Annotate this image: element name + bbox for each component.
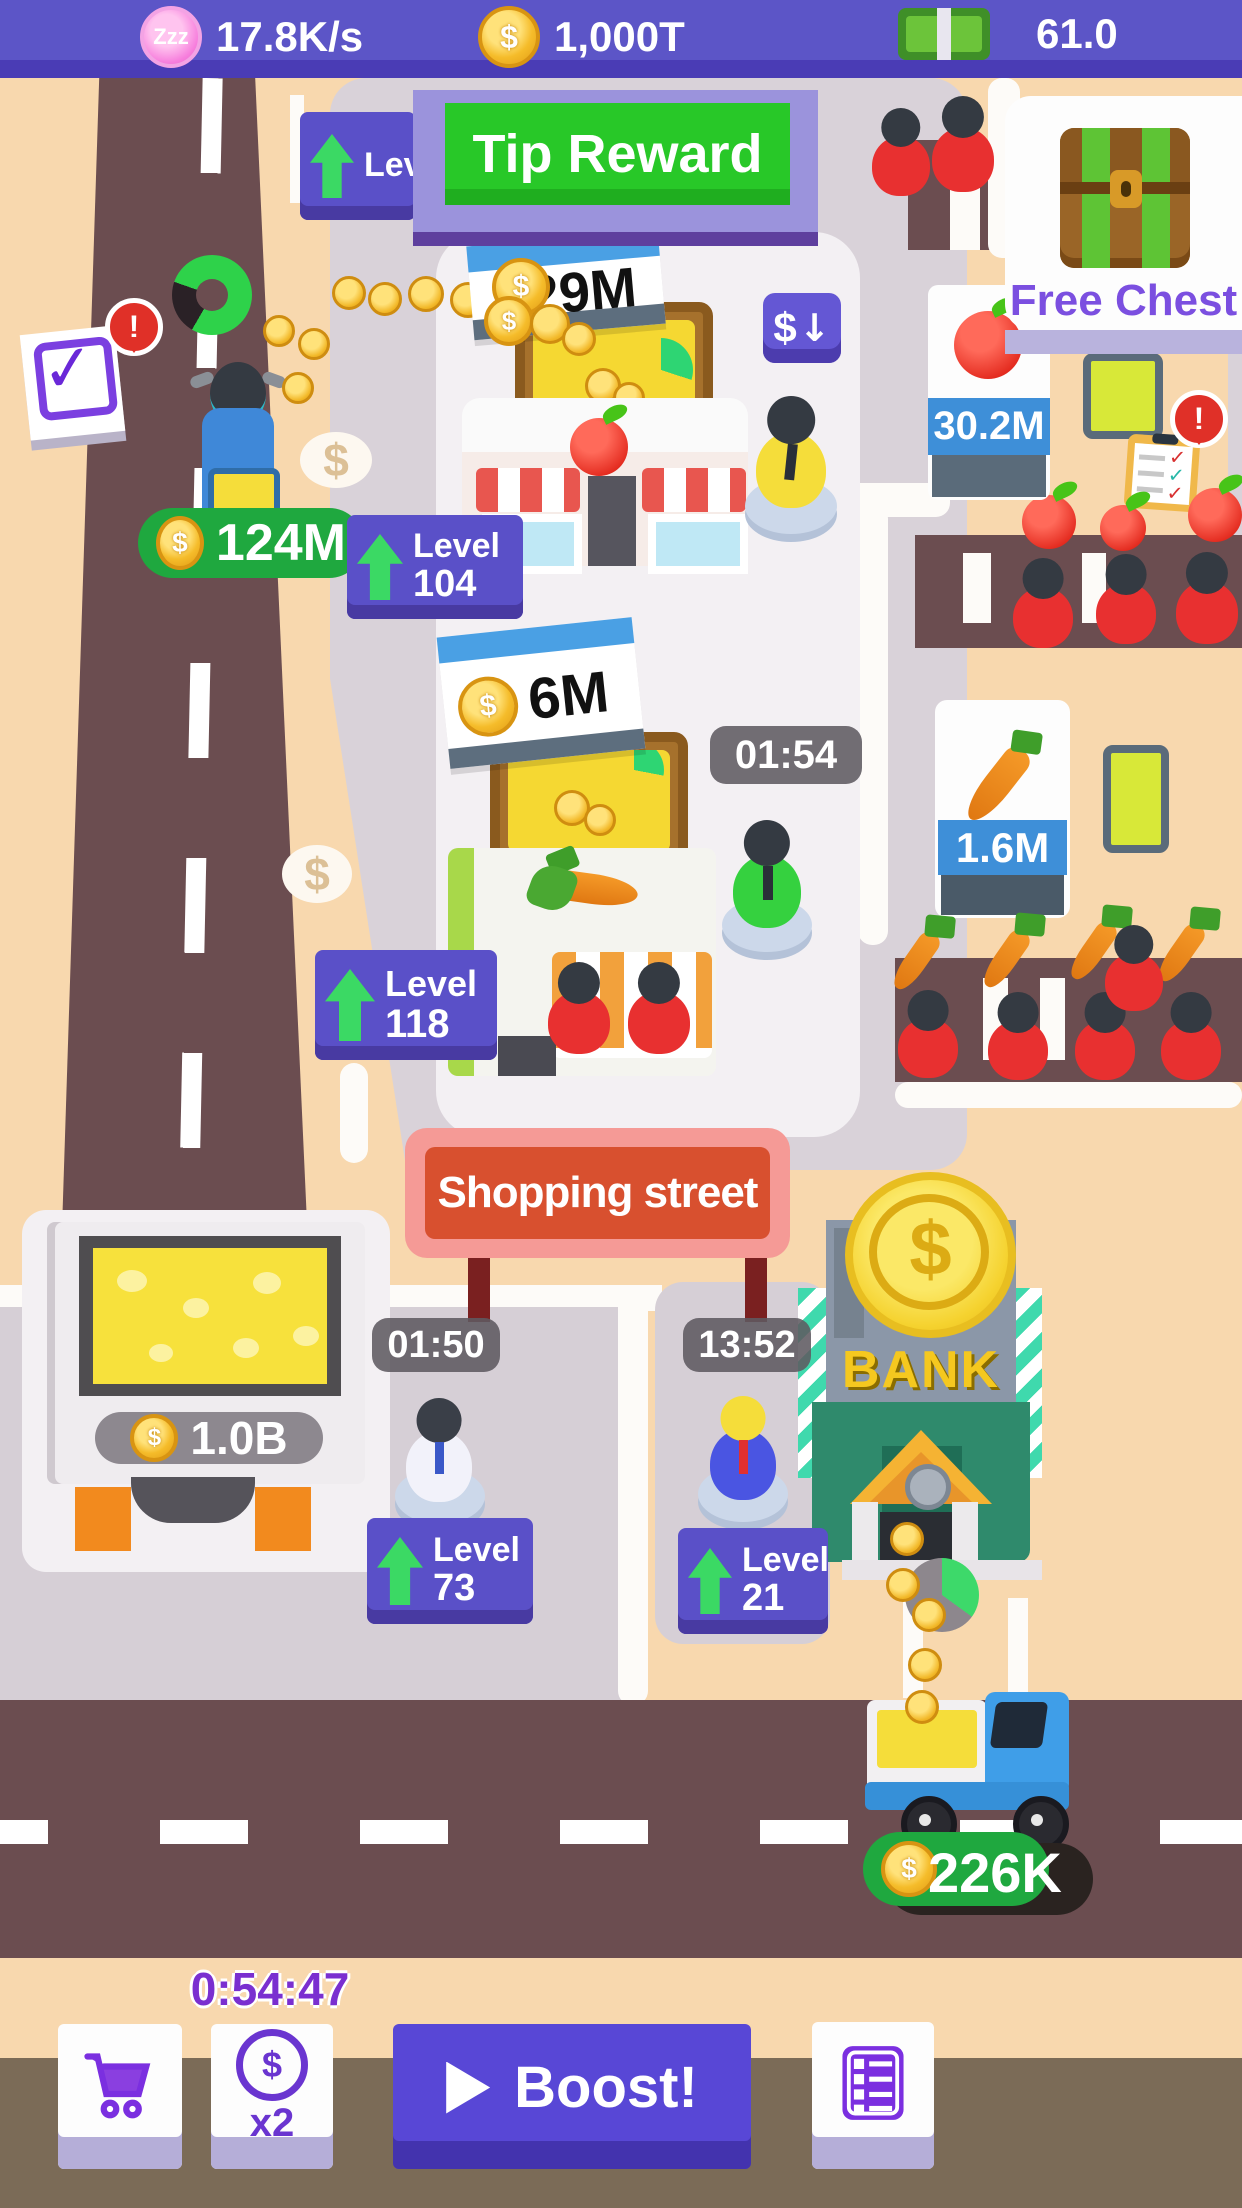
- path: [340, 1063, 368, 1163]
- coin-amount: 1,000T: [554, 13, 685, 61]
- shop-window: [648, 514, 748, 574]
- customer: [628, 962, 690, 1054]
- path: [1008, 1598, 1028, 1698]
- tray-gold: [508, 750, 670, 852]
- tray-progress-wedge: [604, 750, 664, 800]
- level-label: Level: [433, 1533, 520, 1569]
- zzz-glyph: Zzz: [153, 24, 188, 50]
- customer-vip: [406, 1398, 472, 1502]
- cheese-hole: [233, 1338, 259, 1358]
- cheese-value: 1.0B: [190, 1411, 287, 1465]
- coin-icon: $: [478, 6, 540, 68]
- cash-icon: [898, 8, 990, 60]
- bench: [1083, 353, 1163, 439]
- apple-stand-price: 30.2M: [933, 404, 1044, 449]
- cheese-hole: [117, 1270, 147, 1292]
- dollar-glyph: $: [304, 847, 330, 901]
- free-chest-panel-base: [1005, 330, 1242, 354]
- shop-door: [588, 476, 636, 566]
- vertical-road: [55, 78, 315, 1285]
- machine-leg: [255, 1487, 311, 1551]
- cart-icon: [80, 2044, 160, 2124]
- delivery-truck: [865, 1690, 1070, 1832]
- chest-icon: [1060, 128, 1190, 268]
- customer-tie: [435, 1442, 444, 1474]
- coin-icon: [298, 328, 330, 360]
- carrot-icon: [959, 742, 1034, 827]
- bank-level-badge[interactable]: Level 21: [678, 1528, 828, 1634]
- path: [618, 1285, 648, 1705]
- apple-stand-base: [932, 455, 1046, 497]
- bank-clock-icon: [905, 1464, 951, 1510]
- cash-amount: 61.0: [1036, 10, 1118, 58]
- coin-icon: [368, 282, 402, 316]
- multiplier-button[interactable]: $ x2: [211, 2024, 333, 2169]
- customer: [932, 96, 994, 192]
- customer: [1096, 554, 1156, 644]
- candy-shop-level-badge[interactable]: Level 104: [347, 515, 523, 619]
- scooter-value-pill[interactable]: $ 124M: [138, 508, 364, 578]
- boost-timer: 0:54:47: [150, 1962, 390, 2016]
- level-value: 73: [433, 1569, 520, 1609]
- bank-timer: 13:52: [683, 1318, 811, 1372]
- customer: [988, 992, 1048, 1080]
- cheese-timer: 01:50: [372, 1318, 500, 1372]
- level-up-arrow-icon: [325, 969, 375, 1041]
- sleep-income-counter: Zzz 17.8K/s: [140, 6, 363, 68]
- scooter-value: 124M: [216, 513, 346, 573]
- street-sign-post: [468, 1250, 490, 1322]
- coin-icon: [912, 1598, 946, 1632]
- coin-icon: [408, 276, 444, 312]
- bank-name: BANK: [838, 1340, 1004, 1400]
- truck-value: 226K: [928, 1840, 1088, 1905]
- coin-icon: [562, 322, 596, 356]
- apple-icon: [1188, 488, 1242, 542]
- check-icon: ✓: [38, 330, 99, 409]
- coin-icon: $: [156, 516, 204, 570]
- chest-stripe: [1142, 128, 1170, 268]
- coin-icon: [332, 276, 366, 310]
- coin-icon: $: [484, 296, 534, 346]
- cheese-level-badge[interactable]: Level 73: [367, 1518, 533, 1624]
- coin-icon: [890, 1522, 924, 1556]
- tip-reward-label: Tip Reward: [472, 123, 762, 185]
- path: [858, 505, 888, 945]
- dollar-glyph: $: [773, 304, 796, 352]
- level-label: Level: [364, 148, 416, 184]
- alert-pin-icon: !: [1170, 390, 1228, 448]
- cheese-value-pill: $ 1.0B: [95, 1412, 323, 1464]
- veggie-shop-price: 6M: [500, 656, 636, 736]
- income-rate: 17.8K/s: [216, 13, 363, 61]
- zzz-coin-icon: Zzz: [140, 6, 202, 68]
- machine-axle: [131, 1477, 255, 1523]
- customer-vip: [710, 1396, 776, 1500]
- level-up-arrow-icon: [688, 1548, 732, 1614]
- down-arrow-icon: ↓: [799, 306, 831, 350]
- customer-head: [767, 396, 815, 444]
- timer-value: 01:50: [387, 1324, 484, 1367]
- level-value: 104: [413, 565, 500, 605]
- chest-lock-icon: [1110, 170, 1142, 208]
- apple-stand-price-tag: 30.2M: [928, 398, 1050, 455]
- apple-icon: [1022, 495, 1076, 549]
- cheese-hole: [253, 1272, 281, 1294]
- cheese-hole: [183, 1298, 209, 1318]
- cheese-block: [93, 1248, 327, 1384]
- veggie-shop-sign: $ 6M: [437, 617, 646, 769]
- customer: [898, 990, 958, 1078]
- cheese-factory[interactable]: $ 1.0B: [55, 1222, 365, 1552]
- path: [895, 1082, 1242, 1108]
- coin-icon: [905, 1690, 939, 1724]
- truck-window: [990, 1702, 1048, 1748]
- dollar-glyph: $: [262, 2044, 282, 2086]
- timer-value: 01:54: [735, 733, 837, 778]
- apple-icon: [1100, 505, 1146, 551]
- customer-vip: [756, 396, 826, 508]
- check-icon: ✓: [1166, 480, 1184, 505]
- customer: [1105, 925, 1163, 1011]
- collect-money-button[interactable]: $ ↓: [763, 293, 841, 363]
- apple-shelf-gap: [963, 553, 991, 623]
- dollar-glyph: $: [853, 1206, 1008, 1293]
- free-chest-panel[interactable]: Free Chest: [1005, 96, 1242, 330]
- veggie-shop-timer: 01:54: [710, 726, 862, 784]
- customer: [1161, 992, 1221, 1080]
- carrot-stand-price-tag: 1.6M: [938, 820, 1067, 875]
- tip-reward-button[interactable]: Tip Reward: [445, 103, 790, 205]
- level-label: Level: [413, 529, 500, 565]
- level-value: 21: [742, 1579, 829, 1619]
- coin-icon: [263, 315, 295, 347]
- carrot-stand[interactable]: 1.6M: [935, 700, 1070, 918]
- coin-counter: $ 1,000T: [478, 6, 685, 68]
- play-icon: [446, 2062, 490, 2114]
- progress-ring-hole: [196, 279, 228, 311]
- level-value: 118: [385, 1003, 477, 1045]
- game-screen: ✓ ! $ $ $ 124M Level Tip Reward: [0, 0, 1242, 2208]
- coin-icon: [282, 372, 314, 404]
- coin-icon: [908, 1648, 942, 1682]
- level-up-arrow-icon: [357, 534, 403, 600]
- road-dollar-mark: $: [282, 845, 352, 903]
- carrot-stand-base: [941, 875, 1064, 915]
- chest-stripe: [1082, 128, 1110, 268]
- coin-icon: $: [130, 1414, 178, 1462]
- orders-button[interactable]: [812, 2022, 934, 2169]
- shelf-gap: [950, 188, 980, 250]
- multiplier-label: x2: [250, 2101, 295, 2146]
- customer: [548, 962, 610, 1054]
- boost-button[interactable]: Boost!: [393, 2024, 751, 2169]
- veggie-shop-level-badge[interactable]: Level 118: [315, 950, 497, 1060]
- x2-coin-icon: $: [236, 2029, 308, 2101]
- alert-pin-icon: !: [105, 298, 163, 356]
- free-chest-label: Free Chest: [1005, 276, 1242, 326]
- timer-value: 13:52: [698, 1324, 795, 1367]
- order-list-icon: [834, 2041, 912, 2125]
- truck-cab: [985, 1692, 1069, 1794]
- cheese-hole: [293, 1326, 319, 1346]
- level-label: Level: [385, 965, 477, 1003]
- level-up-arrow-icon: [377, 1537, 423, 1605]
- cash-counter: 61.0: [898, 8, 1118, 60]
- level-label: Level: [742, 1543, 829, 1579]
- machine-leg: [75, 1487, 131, 1551]
- customer-vip: [733, 820, 801, 928]
- coin-icon: [886, 1568, 920, 1602]
- level-up-arrow-icon: [310, 134, 354, 198]
- customer: [1176, 552, 1238, 644]
- hidden-level-badge[interactable]: Level: [300, 112, 416, 220]
- street-sign-label: Shopping street: [438, 1168, 758, 1218]
- customer: [872, 108, 930, 196]
- dollar-glyph: $: [323, 433, 349, 487]
- awning: [476, 468, 580, 512]
- street-sign: Shopping street: [405, 1128, 790, 1258]
- bench: [1103, 745, 1169, 853]
- customer-tie: [739, 1440, 748, 1474]
- boost-label: Boost!: [514, 2054, 698, 2121]
- coin-icon: [584, 804, 616, 836]
- customer-tie: [763, 866, 773, 900]
- street-sign-inner: Shopping street: [425, 1147, 770, 1239]
- awning: [642, 468, 746, 512]
- carrot-stand-price: 1.6M: [956, 824, 1049, 872]
- road-dollar-mark: $: [300, 432, 372, 488]
- bank-coin-icon: $: [845, 1172, 1016, 1338]
- street-sign-post: [745, 1250, 767, 1322]
- customer: [1013, 558, 1073, 648]
- cheese-hole: [149, 1344, 173, 1362]
- shop-button[interactable]: [58, 2024, 182, 2169]
- apple-decor: [570, 418, 628, 476]
